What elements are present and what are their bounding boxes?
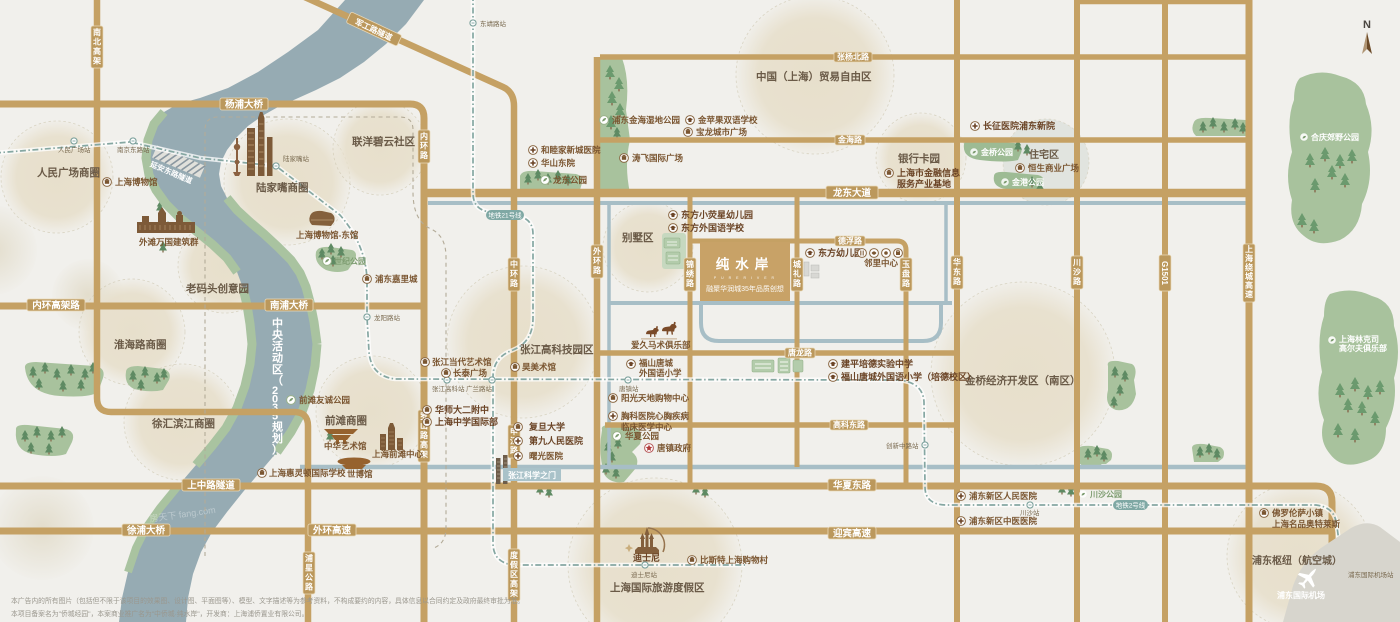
svg-text:阳光天地购物中心: 阳光天地购物中心: [621, 393, 690, 403]
svg-text:佛罗伦萨小镇: 佛罗伦萨小镇: [1271, 508, 1324, 518]
svg-text:东方外国语学校: 东方外国语学校: [681, 222, 745, 233]
svg-text:老码头创意园: 老码头创意园: [185, 282, 249, 295]
svg-text:福山唐城外国语小学（培德校区）: 福山唐城外国语小学（培德校区）: [840, 371, 976, 382]
svg-text:人民广场商圈: 人民广场商圈: [37, 166, 100, 179]
svg-text:浦东嘉里城: 浦东嘉里城: [375, 274, 418, 284]
svg-text:爱久马术俱乐部: 爱久马术俱乐部: [631, 340, 691, 350]
svg-text:华师大二附中: 华师大二附中: [435, 404, 489, 415]
svg-text:金桥经济开发区（南区）: 金桥经济开发区（南区）: [964, 374, 1081, 387]
svg-text:融聚华润城35年品质创想: 融聚华润城35年品质创想: [706, 284, 784, 293]
svg-text:纯水岸: 纯水岸: [716, 256, 775, 272]
svg-text:杨浦大桥: 杨浦大桥: [225, 99, 264, 111]
svg-text:人民广场站: 人民广场站: [58, 145, 91, 154]
svg-text:华夏公园: 华夏公园: [625, 431, 659, 441]
svg-text:邻里中心: 邻里中心: [864, 258, 899, 268]
svg-text:长征医院浦东新院: 长征医院浦东新院: [983, 120, 1055, 131]
svg-text:上海前滩中心: 上海前滩中心: [372, 449, 424, 459]
svg-text:城礼路: 城礼路: [793, 259, 802, 288]
svg-text:中国（上海）贸易自由区: 中国（上海）贸易自由区: [756, 70, 872, 83]
svg-text:唐龙路: 唐龙路: [788, 348, 813, 358]
svg-text:世纪公园: 世纪公园: [334, 256, 366, 266]
svg-text:金苹果双语学校: 金苹果双语学校: [697, 115, 758, 125]
svg-text:南浦大桥: 南浦大桥: [270, 300, 309, 312]
svg-text:胸科医院心胸疾病: 胸科医院心胸疾病: [621, 411, 690, 421]
svg-text:龙东公园: 龙东公园: [552, 175, 587, 185]
svg-text:上海市金融信息: 上海市金融信息: [897, 167, 960, 178]
svg-text:N: N: [1363, 19, 1371, 31]
svg-text:唐镇政府: 唐镇政府: [657, 443, 692, 453]
svg-text:川沙站: 川沙站: [1020, 508, 1040, 517]
svg-text:华山东院: 华山东院: [541, 158, 576, 168]
svg-text:上海国际旅游度假区: 上海国际旅游度假区: [610, 581, 705, 594]
svg-text:上海惠灵顿国际学校: 上海惠灵顿国际学校: [269, 468, 346, 478]
svg-text:锦绣路: 锦绣路: [686, 259, 695, 288]
svg-text:昊美术馆: 昊美术馆: [522, 362, 557, 372]
svg-text:上中路隧道: 上中路隧道: [187, 480, 235, 492]
svg-text:华东路: 华东路: [953, 257, 962, 286]
svg-text:别墅区: 别墅区: [621, 231, 654, 244]
svg-text:金桥公园: 金桥公园: [980, 147, 1013, 157]
svg-text:张杨北路: 张杨北路: [837, 52, 870, 62]
svg-text:内环高架路: 内环高架路: [32, 300, 80, 312]
svg-text:迪士尼: 迪士尼: [633, 552, 660, 563]
svg-text:龙阳路站: 龙阳路站: [374, 313, 401, 322]
svg-text:P U R E R I V E R: P U R E R I V E R: [714, 276, 776, 280]
svg-text:徐汇滨江商圈: 徐汇滨江商圈: [151, 417, 215, 430]
svg-text:本广告内的所有图片（包括但不限于该项目的效果图、设计图、平面: 本广告内的所有图片（包括但不限于该项目的效果图、设计图、平面图等）、模型、文字描…: [11, 596, 524, 605]
svg-text:徐浦大桥: 徐浦大桥: [126, 525, 166, 537]
svg-text:中华艺术馆: 中华艺术馆: [324, 441, 367, 451]
svg-text:金海路: 金海路: [837, 135, 863, 145]
svg-text:浦东国际机场站: 浦东国际机场站: [1348, 570, 1394, 579]
svg-text:度假区高架: 度假区高架: [509, 550, 519, 598]
svg-text:陆家嘴商圈: 陆家嘴商圈: [256, 181, 309, 194]
svg-text:东方小荧星幼儿园: 东方小荧星幼儿园: [681, 209, 753, 220]
svg-text:张江科学之门: 张江科学之门: [508, 470, 556, 480]
svg-text:地铁2号线: 地铁2号线: [1116, 501, 1146, 510]
svg-text:龙东大道: 龙东大道: [832, 187, 872, 199]
svg-text:上海名品奥特莱斯: 上海名品奥特莱斯: [1272, 519, 1341, 529]
svg-text:南京东路站: 南京东路站: [117, 145, 150, 154]
svg-text:比斯特上海购物村: 比斯特上海购物村: [700, 555, 769, 565]
svg-text:外滩万国建筑群: 外滩万国建筑群: [138, 237, 199, 247]
svg-text:高尔夫俱乐部: 高尔夫俱乐部: [1339, 343, 1387, 353]
svg-text:玉盘路: 玉盘路: [902, 260, 911, 288]
svg-text:上海博物馆: 上海博物馆: [115, 177, 158, 187]
svg-text:上海绕城高速: 上海绕城高速: [1245, 244, 1253, 299]
svg-text:合庆郊野公园: 合庆郊野公园: [1310, 132, 1359, 142]
svg-text:涛飞国际广场: 涛飞国际广场: [632, 153, 684, 163]
svg-text:迪士尼站: 迪士尼站: [631, 570, 658, 579]
svg-text:本项目备案名为"侨城经园"，本案商业推广名为"中侨城·纯水岸: 本项目备案名为"侨城经园"，本案商业推广名为"中侨城·纯水岸"，开发商：上海浦侨…: [11, 609, 308, 618]
svg-text:地铁21号线: 地铁21号线: [488, 211, 522, 220]
svg-text:前滩友诚公园: 前滩友诚公园: [299, 395, 350, 405]
svg-text:南北高架: 南北高架: [92, 27, 101, 66]
svg-text:联洋碧云社区: 联洋碧云社区: [352, 135, 415, 148]
svg-text:金港公园: 金港公园: [1011, 177, 1044, 187]
svg-text:建平培德实验中学: 建平培德实验中学: [841, 358, 913, 369]
svg-text:张江高科技园区: 张江高科技园区: [520, 343, 594, 356]
svg-text:浦东新区中医医院: 浦东新区中医医院: [969, 516, 1038, 526]
svg-text:广兰路站: 广兰路站: [466, 384, 493, 393]
svg-text:淮海路商圈: 淮海路商圈: [114, 338, 167, 351]
svg-text:张江当代艺术馆: 张江当代艺术馆: [432, 357, 492, 367]
svg-text:福山唐城: 福山唐城: [638, 358, 674, 368]
svg-text:中央活动区（2035规划）: 中央活动区（2035规划）: [272, 316, 284, 456]
svg-text:长泰广场: 长泰广场: [453, 368, 488, 378]
svg-text:世博馆: 世博馆: [347, 469, 373, 479]
svg-text:内环路: 内环路: [420, 131, 429, 160]
svg-text:浦东金海湿地公园: 浦东金海湿地公园: [612, 115, 680, 125]
svg-text:东方幼儿园: 东方幼儿园: [818, 247, 863, 258]
svg-text:G1501: G1501: [1160, 261, 1169, 286]
svg-text:外国语小学: 外国语小学: [638, 368, 682, 378]
svg-text:前滩商圈: 前滩商圈: [325, 414, 367, 427]
svg-text:创新中路站: 创新中路站: [886, 441, 919, 450]
svg-text:外环高速: 外环高速: [312, 525, 352, 537]
svg-text:宝龙城市广场: 宝龙城市广场: [696, 127, 748, 137]
svg-text:上海林克司: 上海林克司: [1339, 334, 1379, 344]
svg-text:上海中学国际部: 上海中学国际部: [435, 416, 498, 427]
svg-text:浦东国际机场: 浦东国际机场: [1277, 590, 1325, 600]
svg-text:张江高科站: 张江高科站: [432, 384, 465, 393]
svg-text:中环路: 中环路: [510, 259, 519, 288]
svg-text:浦东枢纽（航空城）: 浦东枢纽（航空城）: [1252, 554, 1342, 567]
svg-text:陆家嘴站: 陆家嘴站: [283, 154, 310, 163]
svg-text:德浮路: 德浮路: [838, 236, 863, 246]
svg-text:恒生商业广场: 恒生商业广场: [1028, 163, 1080, 173]
svg-text:住宅区: 住宅区: [1029, 148, 1059, 161]
svg-text:东靖路站: 东靖路站: [480, 19, 507, 28]
svg-text:华夏东路: 华夏东路: [833, 480, 872, 492]
svg-text:曙光医院: 曙光医院: [529, 451, 564, 461]
svg-text:浦星公路: 浦星公路: [305, 553, 314, 592]
svg-text:川沙路: 川沙路: [1072, 258, 1082, 286]
svg-text:和睦家新城医院: 和睦家新城医院: [541, 145, 601, 155]
svg-text:川沙公园: 川沙公园: [1089, 490, 1122, 499]
svg-text:第九人民医院: 第九人民医院: [529, 435, 583, 446]
svg-text:银行卡园: 银行卡园: [898, 152, 940, 165]
svg-text:浦东新区人民医院: 浦东新区人民医院: [969, 491, 1038, 501]
svg-text:外环路: 外环路: [593, 246, 602, 275]
svg-text:复旦大学: 复旦大学: [528, 421, 565, 432]
svg-text:高科东路: 高科东路: [833, 420, 866, 430]
svg-text:迎宾高速: 迎宾高速: [833, 528, 872, 540]
svg-text:上海博物馆-东馆: 上海博物馆-东馆: [296, 230, 359, 240]
svg-text:唐镇站: 唐镇站: [619, 384, 639, 393]
svg-text:服务产业基地: 服务产业基地: [897, 178, 951, 189]
